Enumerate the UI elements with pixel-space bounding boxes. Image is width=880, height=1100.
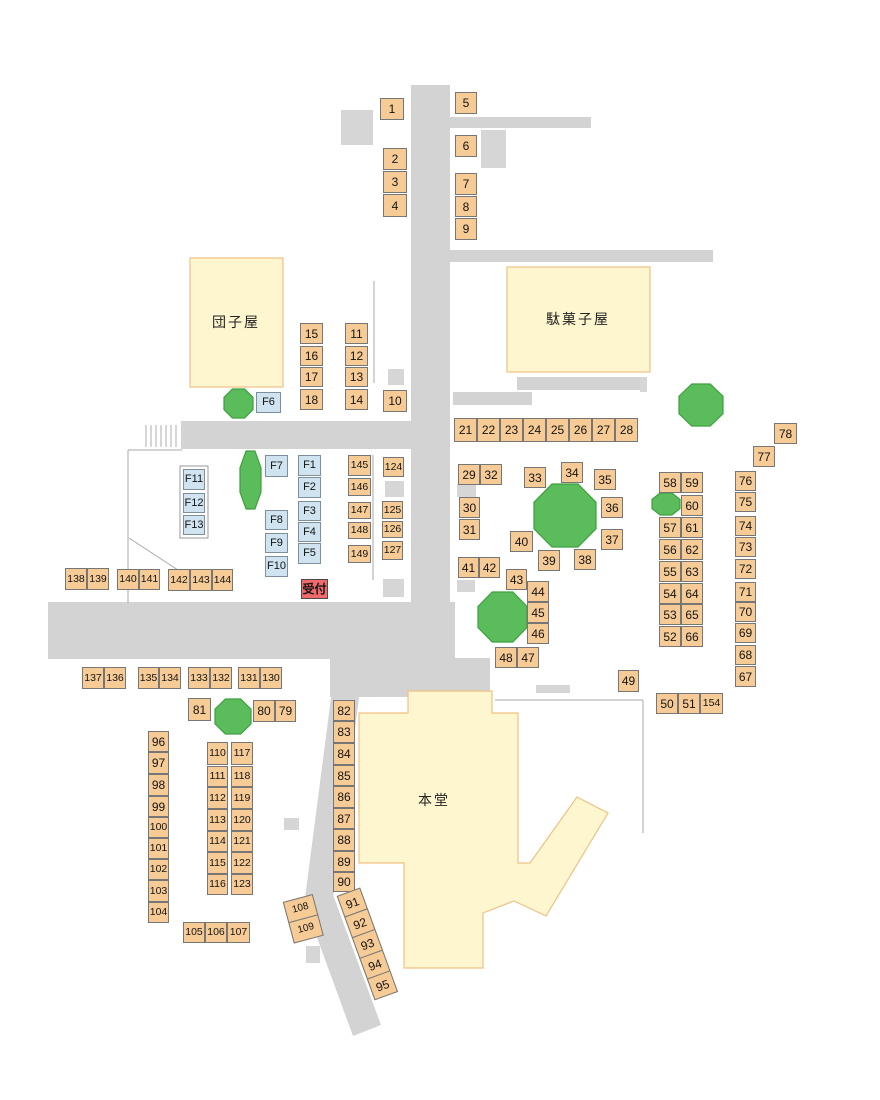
stall-F12: F12 (183, 493, 205, 513)
stall-118: 118 (231, 766, 253, 787)
stall-63: 63 (681, 561, 703, 582)
stall-140: 140 (117, 569, 139, 590)
stall-59: 59 (681, 472, 703, 493)
stall-114: 114 (207, 831, 228, 852)
stall-83: 83 (333, 721, 355, 743)
tree (478, 592, 527, 642)
stall-7: 7 (455, 173, 477, 195)
stall-125: 125 (382, 501, 403, 519)
road-segment (517, 377, 647, 390)
stall-30: 30 (459, 497, 480, 518)
stall-51: 51 (678, 693, 700, 714)
stall-143: 143 (190, 569, 212, 591)
stall-23: 23 (500, 418, 523, 442)
stall-96: 96 (148, 731, 169, 752)
tree (240, 451, 261, 509)
stall-21: 21 (454, 418, 477, 442)
stall-65: 65 (681, 604, 703, 625)
stall-75: 75 (735, 492, 756, 512)
stall-145: 145 (348, 455, 371, 476)
stall-8: 8 (455, 196, 477, 217)
stall-120: 120 (231, 809, 253, 831)
building-hondo (359, 691, 608, 968)
stall-14: 14 (345, 389, 368, 410)
stall-88: 88 (333, 829, 355, 851)
stall-138: 138 (65, 568, 87, 590)
stall-67: 67 (735, 666, 756, 687)
stall-48: 48 (495, 647, 517, 668)
gray-square (536, 685, 570, 693)
stall-122: 122 (231, 852, 253, 874)
stall-F9: F9 (265, 533, 288, 553)
stall-F1: F1 (298, 455, 321, 476)
road-segment (448, 250, 713, 262)
stall-116: 116 (207, 874, 228, 895)
road-segment (453, 392, 532, 405)
stall-18: 18 (300, 389, 323, 410)
stall-12: 12 (345, 346, 368, 366)
stall-6: 6 (455, 135, 477, 157)
stall-17: 17 (300, 367, 323, 387)
gray-square (306, 946, 320, 963)
tree (215, 699, 251, 734)
tree (652, 493, 680, 515)
stall-100: 100 (148, 817, 169, 838)
stall-46: 46 (527, 623, 549, 644)
stall-85: 85 (333, 765, 355, 786)
stall-86: 86 (333, 786, 355, 808)
stall-F3: F3 (298, 501, 321, 521)
stall-27: 27 (592, 418, 615, 442)
stall-133: 133 (188, 667, 210, 689)
stall-F2: F2 (298, 477, 321, 498)
stall-F8: F8 (265, 510, 288, 530)
stall-15: 15 (300, 323, 323, 344)
stall-11: 11 (345, 323, 368, 344)
stall-F4: F4 (298, 522, 321, 542)
stall-F13: F13 (183, 515, 205, 535)
stall-136: 136 (104, 667, 126, 689)
stall-82: 82 (333, 700, 355, 721)
stall-25: 25 (546, 418, 569, 442)
stall-121: 121 (231, 831, 253, 852)
gray-square (481, 130, 506, 168)
stall-147: 147 (348, 502, 371, 519)
stall-35: 35 (594, 469, 616, 490)
stall-148: 148 (348, 522, 371, 539)
stall-137: 137 (82, 667, 104, 689)
stall-127: 127 (382, 541, 403, 560)
road-segment (48, 602, 455, 659)
stall-F5: F5 (298, 543, 321, 564)
stall-84: 84 (333, 743, 355, 765)
stall-29: 29 (458, 464, 480, 485)
stall-52: 52 (659, 626, 681, 647)
stall-105: 105 (183, 922, 205, 943)
stall-132: 132 (210, 667, 232, 689)
stall-101: 101 (148, 838, 169, 859)
stall-42: 42 (479, 557, 500, 578)
stall-130: 130 (260, 667, 282, 689)
stall-58: 58 (659, 472, 681, 493)
stall-64: 64 (681, 583, 703, 604)
stall-124: 124 (383, 457, 404, 477)
stall-32: 32 (480, 464, 502, 485)
stall-26: 26 (569, 418, 592, 442)
festival-map: 団子屋駄菓子屋本堂152346789151617181112131410F621… (0, 0, 880, 1100)
stall-87: 87 (333, 808, 355, 829)
stall-70: 70 (735, 602, 756, 622)
stall-90: 90 (333, 872, 355, 892)
gray-square (388, 369, 404, 385)
stall-37: 37 (601, 529, 623, 550)
stall-103: 103 (148, 880, 169, 902)
stall-4: 4 (383, 194, 407, 217)
stall-9: 9 (455, 218, 477, 240)
stall-110: 110 (207, 742, 228, 765)
stall-44: 44 (527, 581, 549, 602)
stall-F10: F10 (265, 556, 288, 577)
stall-73: 73 (735, 537, 756, 557)
stall-134: 134 (159, 667, 181, 689)
stall-126: 126 (382, 521, 403, 538)
stall-72: 72 (735, 559, 756, 579)
stall-13: 13 (345, 367, 368, 387)
stall-61: 61 (681, 517, 703, 538)
gray-square (457, 580, 475, 592)
reception-stall: 受付 (301, 579, 328, 599)
stall-97: 97 (148, 752, 169, 774)
stall-57: 57 (659, 517, 681, 538)
stall-2: 2 (383, 148, 407, 170)
stall-55: 55 (659, 561, 681, 582)
stall-102: 102 (148, 859, 169, 880)
road-segment (181, 421, 411, 449)
gray-square (284, 818, 299, 830)
stall-36: 36 (601, 497, 623, 518)
tree (534, 484, 596, 547)
stall-111: 111 (207, 766, 228, 787)
stall-24: 24 (523, 418, 546, 442)
stall-47: 47 (517, 647, 539, 668)
stall-71: 71 (735, 582, 756, 602)
stall-34: 34 (561, 462, 583, 483)
building-dango (190, 258, 283, 387)
stall-1: 1 (380, 98, 404, 120)
stall-106: 106 (205, 922, 227, 943)
building-dagashi (507, 267, 650, 372)
stall-142: 142 (168, 569, 190, 591)
stall-53: 53 (659, 604, 681, 625)
stall-45: 45 (527, 602, 549, 623)
stall-56: 56 (659, 539, 681, 560)
stall-141: 141 (139, 569, 160, 590)
stall-54: 54 (659, 583, 681, 604)
stall-68: 68 (735, 645, 756, 665)
stall-41: 41 (458, 557, 479, 578)
stall-43: 43 (506, 569, 527, 590)
stall-76: 76 (735, 471, 756, 491)
stall-74: 74 (735, 516, 756, 536)
stall-22: 22 (477, 418, 500, 442)
stall-38: 38 (574, 549, 596, 570)
stall-50: 50 (656, 693, 678, 714)
tree (679, 384, 723, 426)
stall-28: 28 (615, 418, 638, 442)
stall-98: 98 (148, 774, 169, 796)
gray-square (457, 484, 476, 497)
stall-5: 5 (455, 92, 477, 114)
road-segment (450, 117, 591, 128)
gray-square (640, 377, 647, 392)
stall-78: 78 (774, 423, 797, 444)
stall-F6: F6 (256, 392, 281, 413)
stall-104: 104 (148, 902, 169, 923)
stall-F11: F11 (183, 469, 205, 490)
gray-square (383, 579, 404, 597)
stall-80: 80 (253, 700, 275, 722)
stall-117: 117 (231, 742, 253, 765)
stall-66: 66 (681, 626, 703, 647)
stall-16: 16 (300, 346, 323, 366)
stall-89: 89 (333, 851, 355, 872)
stall-123: 123 (231, 874, 253, 895)
gray-square (341, 110, 373, 145)
stall-31: 31 (459, 519, 480, 540)
stall-60: 60 (681, 495, 703, 516)
stall-112: 112 (207, 787, 228, 809)
stall-149: 149 (348, 545, 371, 563)
stall-139: 139 (87, 568, 109, 590)
stall-107: 107 (227, 922, 250, 943)
stall-81: 81 (188, 698, 211, 721)
stall-79: 79 (275, 700, 296, 722)
stall-144: 144 (212, 569, 233, 591)
stall-62: 62 (681, 539, 703, 560)
stall-119: 119 (231, 787, 253, 809)
stall-33: 33 (524, 467, 546, 488)
stall-131: 131 (238, 667, 260, 689)
stall-49: 49 (618, 670, 639, 692)
stall-69: 69 (735, 623, 756, 643)
stall-154: 154 (700, 693, 723, 714)
stall-F7: F7 (265, 455, 288, 477)
stall-135: 135 (138, 667, 159, 689)
stall-3: 3 (383, 171, 407, 193)
stall-113: 113 (207, 809, 228, 831)
road-segment (411, 85, 450, 608)
stall-77: 77 (753, 446, 775, 467)
stall-40: 40 (510, 531, 533, 552)
stall-99: 99 (148, 796, 169, 817)
stall-146: 146 (348, 478, 371, 496)
gray-square (385, 481, 404, 497)
stall-10: 10 (383, 390, 407, 412)
stall-115: 115 (207, 852, 228, 874)
stall-39: 39 (538, 550, 560, 571)
tree (224, 389, 253, 418)
